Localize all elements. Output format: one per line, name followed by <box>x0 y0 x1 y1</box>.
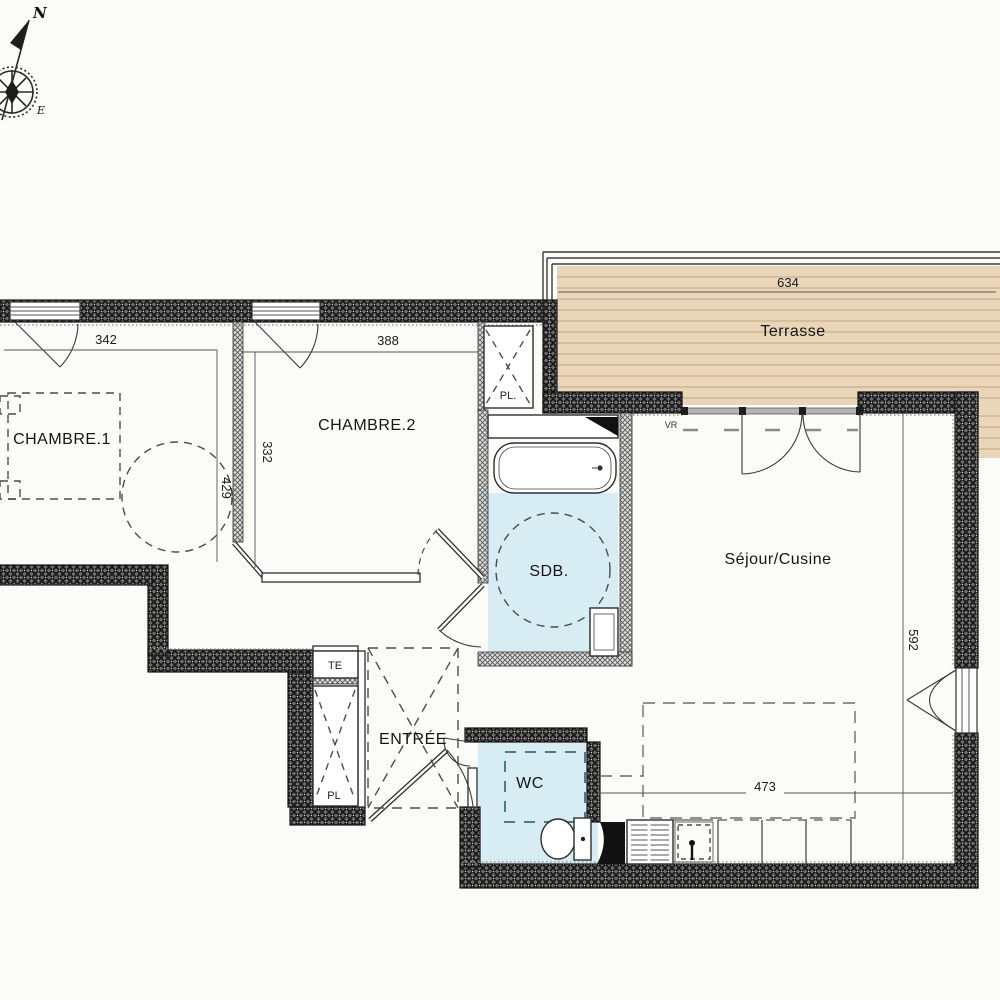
turning-circle-chambre1 <box>122 442 232 552</box>
terrasse-french-doors: VR <box>665 407 863 474</box>
window-sejour-right <box>907 668 977 733</box>
room-label-chambre2: CHAMBRE.2 <box>318 417 416 434</box>
room-label-chambre1: CHAMBRE.1 <box>13 431 111 448</box>
closet-pl-lower-label: PL <box>327 790 340 802</box>
window-chambre1 <box>10 302 80 367</box>
room-label-terrasse: Terrasse <box>760 323 825 340</box>
door-chambre2 <box>418 530 483 578</box>
dim-chambre1-width: 342 <box>95 332 117 347</box>
dim-sejour-width: 473 <box>754 779 776 794</box>
closet-pl-upper: PL. <box>484 326 533 408</box>
compass-east-label: E <box>36 104 45 117</box>
kitchen-counter-dashed <box>600 703 855 818</box>
closet-te: TE <box>313 651 358 678</box>
dim-sejour-depth: 592 <box>906 629 921 651</box>
dim-terrasse-width: 634 <box>777 275 799 290</box>
compass-rose: N E <box>0 4 48 120</box>
sdb-sink <box>590 608 618 656</box>
room-label-wc: WC <box>516 775 544 792</box>
terrasse-deck-right <box>978 405 1000 458</box>
dim-chambre2-width: 388 <box>377 333 399 348</box>
duct <box>597 822 625 864</box>
room-label-sdb: SDB. <box>529 563 568 580</box>
dim-chambre2-depth: 332 <box>260 441 275 463</box>
bathtub <box>494 443 616 493</box>
kitchen-cooktop <box>675 822 713 862</box>
dim-chambre1-depth: 429 <box>219 477 234 499</box>
compass-north-label: N <box>32 4 48 22</box>
sdb-shelf <box>488 415 618 438</box>
kitchen-sink <box>627 820 673 864</box>
room-label-entree: ENTRÉE <box>379 729 447 748</box>
vr-shutter-label: VR <box>665 420 678 430</box>
window-chambre2 <box>252 302 320 368</box>
door-sdb <box>439 585 483 647</box>
floor-plan: VR PL. TE PL <box>0 0 1000 1000</box>
closet-te-label: TE <box>328 660 342 672</box>
room-label-sejour: Séjour/Cusine <box>725 551 832 568</box>
closet-pl-lower: PL <box>313 686 358 806</box>
closet-pl-upper-label: PL. <box>500 390 517 402</box>
toilet <box>541 818 591 860</box>
floor-plan-svg: VR PL. TE PL <box>0 0 1000 1000</box>
